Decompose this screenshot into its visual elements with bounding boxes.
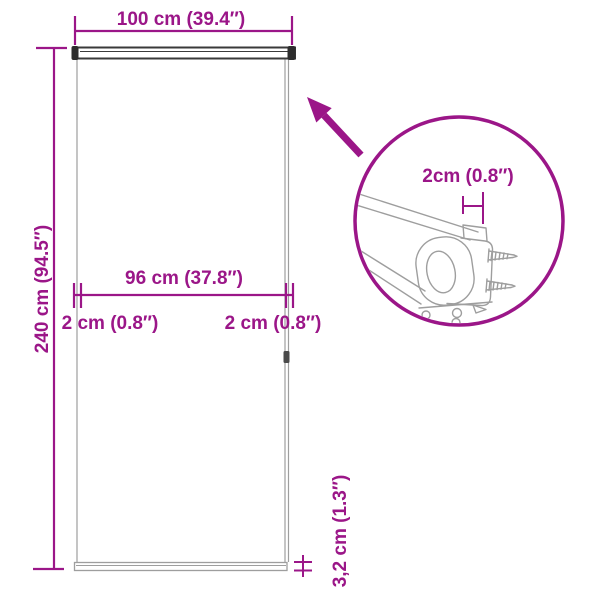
roller-blind-dimension-diagram: 100 cm (39.4″) 240 cm (94.5″) 96 cm (37.… bbox=[0, 0, 600, 600]
dimension-bottom-bar-height: 3,2 cm (1.3″) bbox=[294, 475, 351, 588]
blind-cord-clip bbox=[284, 351, 290, 363]
gap-right-label: 2 cm (0.8″) bbox=[225, 313, 322, 334]
detail-callout: 2cm (0.8″) bbox=[307, 97, 563, 327]
blind-drawing bbox=[72, 46, 296, 571]
gap-left-label: 2 cm (0.8″) bbox=[62, 313, 159, 334]
blind-fabric-panel bbox=[77, 58, 285, 563]
dimension-total-width: 100 cm (39.4″) bbox=[75, 9, 292, 45]
dimension-total-height: 240 cm (94.5″) bbox=[32, 48, 67, 569]
blind-left-end-cap bbox=[72, 46, 79, 60]
bottom-bar-height-label: 3,2 cm (1.3″) bbox=[330, 475, 351, 588]
total-width-label: 100 cm (39.4″) bbox=[117, 9, 245, 30]
blind-bottom-bar bbox=[75, 563, 288, 571]
fabric-width-label: 96 cm (37.8″) bbox=[125, 268, 243, 289]
blind-top-roller-bar bbox=[73, 48, 295, 59]
callout-circle bbox=[355, 117, 563, 325]
diagram-canvas: 100 cm (39.4″) 240 cm (94.5″) 96 cm (37.… bbox=[0, 0, 600, 600]
callout-arrow-shaft bbox=[324, 115, 361, 155]
total-height-label: 240 cm (94.5″) bbox=[32, 225, 53, 353]
blind-right-end-cap bbox=[288, 46, 296, 60]
bracket-gap-label: 2cm (0.8″) bbox=[422, 166, 513, 187]
